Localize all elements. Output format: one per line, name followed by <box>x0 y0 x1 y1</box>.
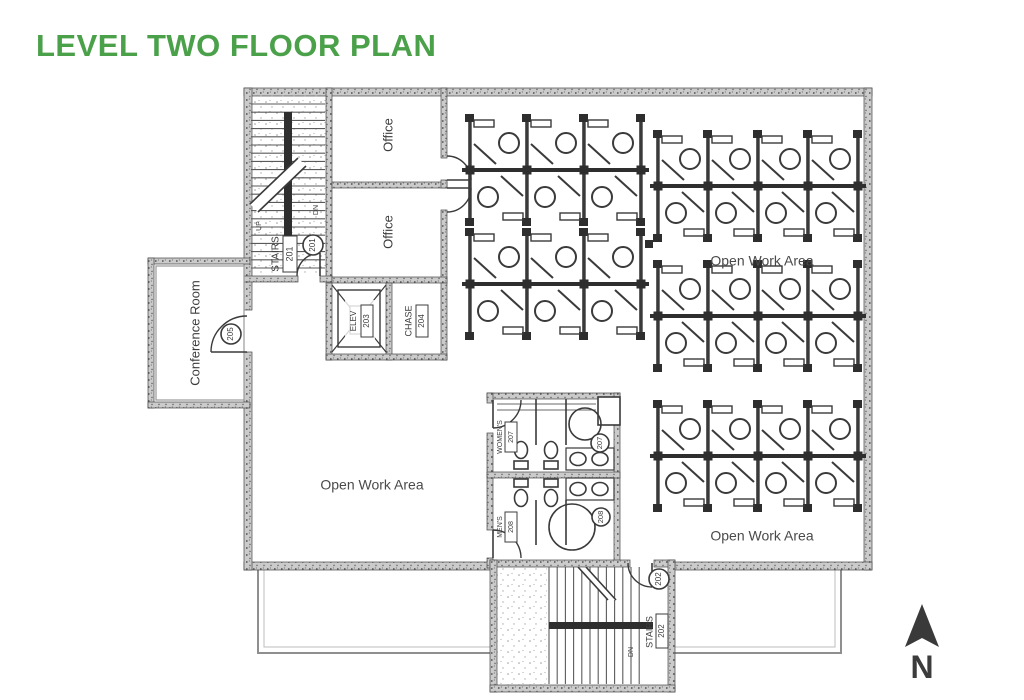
cubicle-cluster <box>650 400 866 512</box>
stairs-201-label: STAIRS <box>271 236 282 272</box>
mens-sink <box>592 483 608 496</box>
page-title: LEVEL TWO FLOOR PLAN <box>36 28 436 64</box>
mens-label: MEN'S <box>497 516 504 538</box>
womens-label: WOMEN'S <box>497 420 504 454</box>
north-arrow: N <box>905 604 939 685</box>
conference-room: Conference Room 205 <box>148 258 250 408</box>
door-tag-stairs-202-text: 202 <box>654 572 663 586</box>
structural-column <box>645 240 653 248</box>
mens-sink <box>570 483 586 496</box>
stairs-201-up-marker: UP <box>256 221 263 231</box>
door-tag-womens-text: 207 <box>595 437 604 450</box>
womens-sink <box>570 453 586 466</box>
conference-label: Conference Room <box>187 280 202 386</box>
mens-number: 208 <box>508 521 515 533</box>
open-work-area-label-sw: Open Work Area <box>320 477 423 493</box>
stairs-202-floor-texture <box>497 567 547 685</box>
chase-label: CHASE <box>403 305 413 336</box>
womens-sink <box>592 453 608 466</box>
offices: Office Office <box>332 88 471 283</box>
womens-toilets <box>514 442 558 470</box>
floor-plan-page: LEVEL TWO FLOOR PLAN <box>0 0 1024 700</box>
mens-turning-circle <box>549 504 595 550</box>
elevator-chase: ELEV 203 CHASE 204 <box>326 283 447 360</box>
chase-number: 204 <box>417 314 426 328</box>
office-lower-door-arc <box>447 188 471 212</box>
stairs-201-number: 201 <box>284 246 294 261</box>
open-work-area-label-ne: Open Work Area <box>710 253 813 269</box>
stairs-202-number: 202 <box>657 624 666 638</box>
floor-plan-drawing: STAIRS 201 UP DN 201 Office Office <box>0 0 1024 700</box>
cubicle-cluster <box>462 228 649 340</box>
elevator-label: ELEV <box>349 310 358 331</box>
cubicle-cluster <box>650 130 866 242</box>
stairs-202-room: STAIRS 202 DN 202 <box>490 560 675 692</box>
stairs-202-dn-marker: DN <box>628 647 635 657</box>
door-tag-stairs-201-text: 201 <box>308 238 317 252</box>
office-lower-label: Office <box>380 215 395 249</box>
restrooms: WOMEN'S 207 207 MEN'S 208 208 <box>487 393 620 568</box>
north-label: N <box>910 649 933 685</box>
door-tag-conference-text: 205 <box>226 327 235 341</box>
womens-number: 207 <box>508 431 515 443</box>
open-work-area-label-se: Open Work Area <box>710 528 813 544</box>
office-upper-label: Office <box>380 118 395 152</box>
stairs-201-room: STAIRS 201 UP DN 201 <box>244 88 332 282</box>
north-arrow-icon <box>905 604 939 647</box>
cubicle-cluster <box>462 114 649 226</box>
stairs-202-rail <box>549 622 653 629</box>
elevator-number: 203 <box>362 314 371 328</box>
stairs-202-label: STAIRS <box>644 616 654 648</box>
cubicle-cluster <box>650 260 866 372</box>
door-tag-mens-text: 208 <box>596 511 605 524</box>
elev-chase-walls <box>326 283 447 360</box>
stairs-201-dn-marker: DN <box>313 205 320 215</box>
office-walls <box>332 88 447 283</box>
